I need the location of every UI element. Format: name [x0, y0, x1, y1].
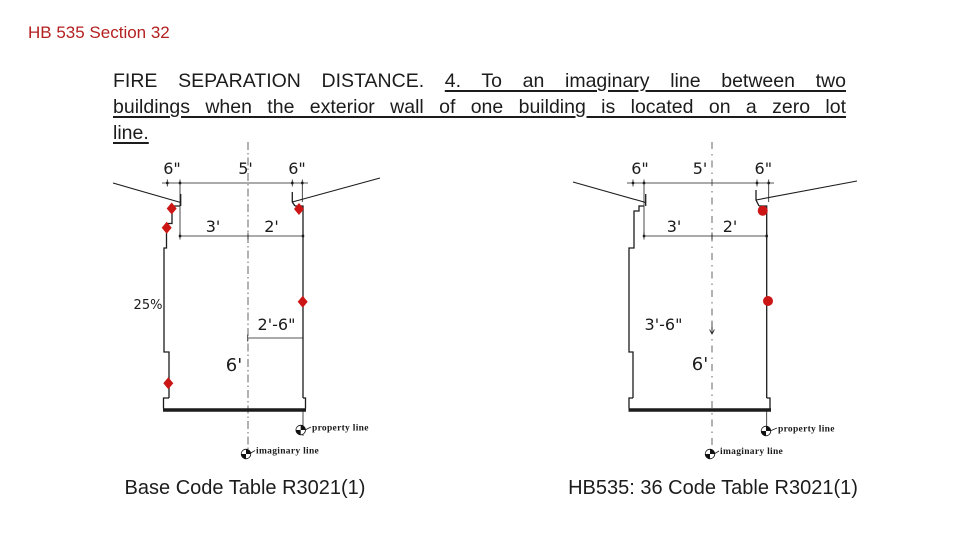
- dim-span: 5': [238, 159, 253, 178]
- left-eave-line: [113, 183, 181, 203]
- caption-left: Base Code Table R3021(1): [95, 477, 395, 500]
- dim-offset-left: 3': [206, 217, 221, 236]
- slide-title: HB 535 Section 32: [28, 24, 170, 42]
- red-dot-markers: [758, 206, 773, 306]
- body-line2-underlined: buildings when the exterior wall of one …: [113, 96, 846, 118]
- imaginary-line-label: imaginary line: [256, 447, 319, 457]
- right-building-outline: [756, 181, 857, 398]
- body-line1-plain: FIRE SEPARATION DISTANCE.: [113, 70, 424, 92]
- imaginary-line-label: imaginary line: [720, 447, 783, 457]
- caption-right: HB535: 36 Code Table R3021(1): [548, 477, 878, 500]
- body-line1-underlined: 4. To an imaginary line between two: [445, 70, 846, 92]
- property-line-marker-icon: [761, 426, 771, 436]
- dim-total: 6': [226, 355, 242, 376]
- dim-eave-right: 6": [755, 159, 773, 178]
- centerline-arrow: [710, 322, 715, 334]
- foundation: [163, 398, 306, 410]
- dim-offset-right: 2': [723, 217, 738, 236]
- dim-eave-right: 6": [288, 159, 306, 178]
- imaginary-line-marker-icon: [705, 449, 715, 459]
- left-building-outline: [573, 182, 646, 398]
- setback-dimension: [248, 335, 303, 342]
- dim-offset-right: 2': [264, 217, 279, 236]
- dim-setback: 3'-6": [645, 315, 683, 334]
- property-line-marker-icon: [296, 425, 306, 435]
- top-dimension: [162, 180, 308, 237]
- dim-eave-left: 6": [631, 159, 649, 178]
- diagram-base-code: 6" 5' 6" 3' 2' 25% 2'-6" 6': [95, 140, 395, 470]
- right-eave-line: [292, 178, 380, 202]
- foundation: [629, 398, 772, 410]
- dim-span: 5': [693, 159, 708, 178]
- imaginary-line-marker-icon: [241, 449, 251, 459]
- slide: HB 535 Section 32 FIRE SEPARATION DISTAN…: [0, 0, 960, 540]
- dim-total: 6': [692, 354, 708, 375]
- left-wall: [629, 206, 644, 398]
- left-building-outline: [113, 183, 181, 398]
- dim-eave-left: 6": [163, 159, 181, 178]
- diagram-hb535: 6" 5' 6" 3' 2' 3'-6" 6': [555, 140, 865, 470]
- body-text: FIRE SEPARATION DISTANCE. 4. To an imagi…: [113, 68, 846, 146]
- dim-offset-left: 3': [667, 217, 682, 236]
- property-line-label: property line: [312, 424, 369, 434]
- mid-dimension: [643, 233, 768, 240]
- property-line-label: property line: [778, 425, 835, 435]
- mid-dimension: [179, 233, 304, 240]
- left-eave-line: [573, 182, 646, 203]
- right-building-outline: [292, 178, 380, 398]
- body-line-2: buildings when the exterior wall of one …: [113, 94, 846, 120]
- dim-setback: 2'-6": [258, 315, 296, 334]
- left-wall: [164, 206, 180, 398]
- slope-label: 25%: [134, 298, 163, 313]
- top-dimension: [627, 180, 774, 237]
- right-eave-line: [756, 181, 857, 200]
- body-line-1: FIRE SEPARATION DISTANCE. 4. To an imagi…: [113, 68, 846, 94]
